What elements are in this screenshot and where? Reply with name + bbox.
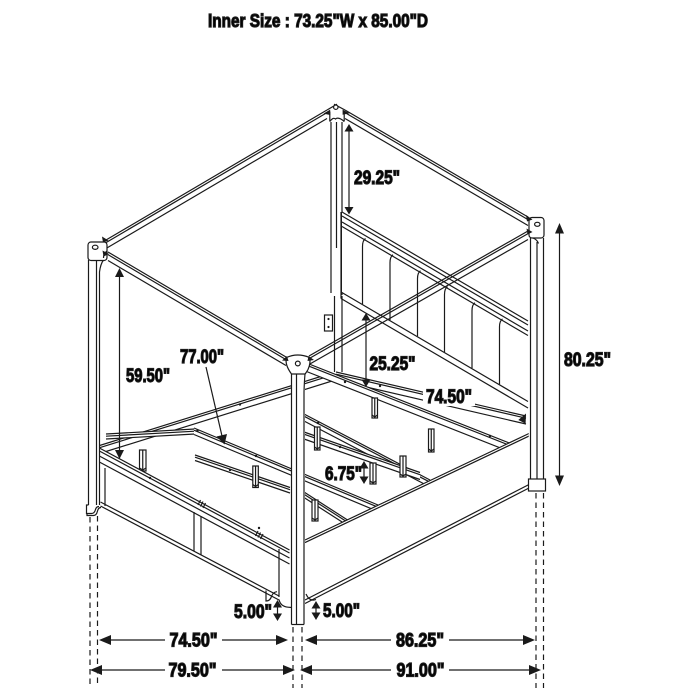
svg-text:25.25": 25.25": [370, 354, 416, 375]
svg-text:5.00": 5.00": [234, 602, 272, 623]
svg-text:80.25": 80.25": [564, 350, 611, 371]
svg-text:6.75": 6.75": [325, 464, 362, 485]
svg-text:Inner Size : 73.25"W x 85.00"D: Inner Size : 73.25"W x 85.00"D: [208, 10, 428, 31]
svg-text:77.00": 77.00": [180, 347, 224, 368]
svg-text:86.25": 86.25": [396, 631, 444, 652]
svg-text:74.50": 74.50": [170, 631, 218, 652]
svg-text:79.50": 79.50": [169, 661, 217, 682]
svg-text:5.00": 5.00": [323, 601, 360, 622]
svg-text:74.50": 74.50": [426, 387, 472, 408]
svg-text:59.50": 59.50": [126, 366, 170, 387]
svg-text:29.25": 29.25": [354, 168, 400, 189]
svg-text:91.00": 91.00": [397, 661, 445, 682]
